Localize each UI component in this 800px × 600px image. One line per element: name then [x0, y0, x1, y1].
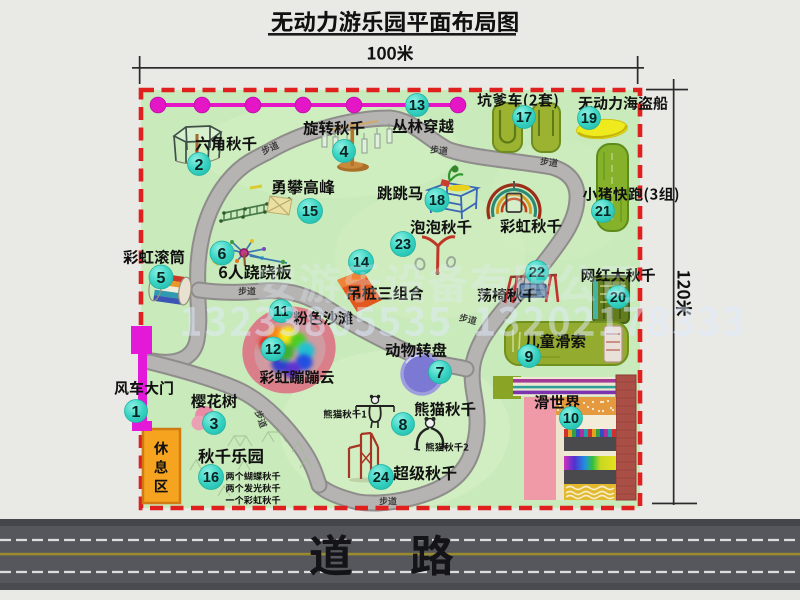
svg-text:10: 10	[563, 411, 579, 427]
svg-text:23: 23	[395, 237, 411, 253]
svg-text:6: 6	[218, 246, 227, 263]
svg-text:11: 11	[273, 304, 288, 320]
svg-text:16: 16	[203, 470, 219, 486]
svg-text:13: 13	[409, 98, 425, 114]
svg-text:3: 3	[210, 416, 219, 433]
svg-text:21: 21	[595, 204, 611, 220]
svg-text:24: 24	[373, 470, 389, 486]
svg-text:2: 2	[195, 157, 204, 174]
svg-text:12: 12	[265, 342, 281, 358]
svg-text:8: 8	[399, 417, 408, 434]
svg-text:9: 9	[525, 349, 534, 366]
svg-text:17: 17	[516, 110, 532, 126]
svg-text:7: 7	[436, 365, 445, 382]
svg-text:18: 18	[429, 193, 445, 209]
svg-text:19: 19	[581, 111, 597, 127]
svg-text:5: 5	[157, 270, 166, 287]
svg-text:4: 4	[340, 144, 349, 161]
svg-text:15: 15	[302, 204, 318, 220]
svg-text:1: 1	[132, 404, 141, 421]
